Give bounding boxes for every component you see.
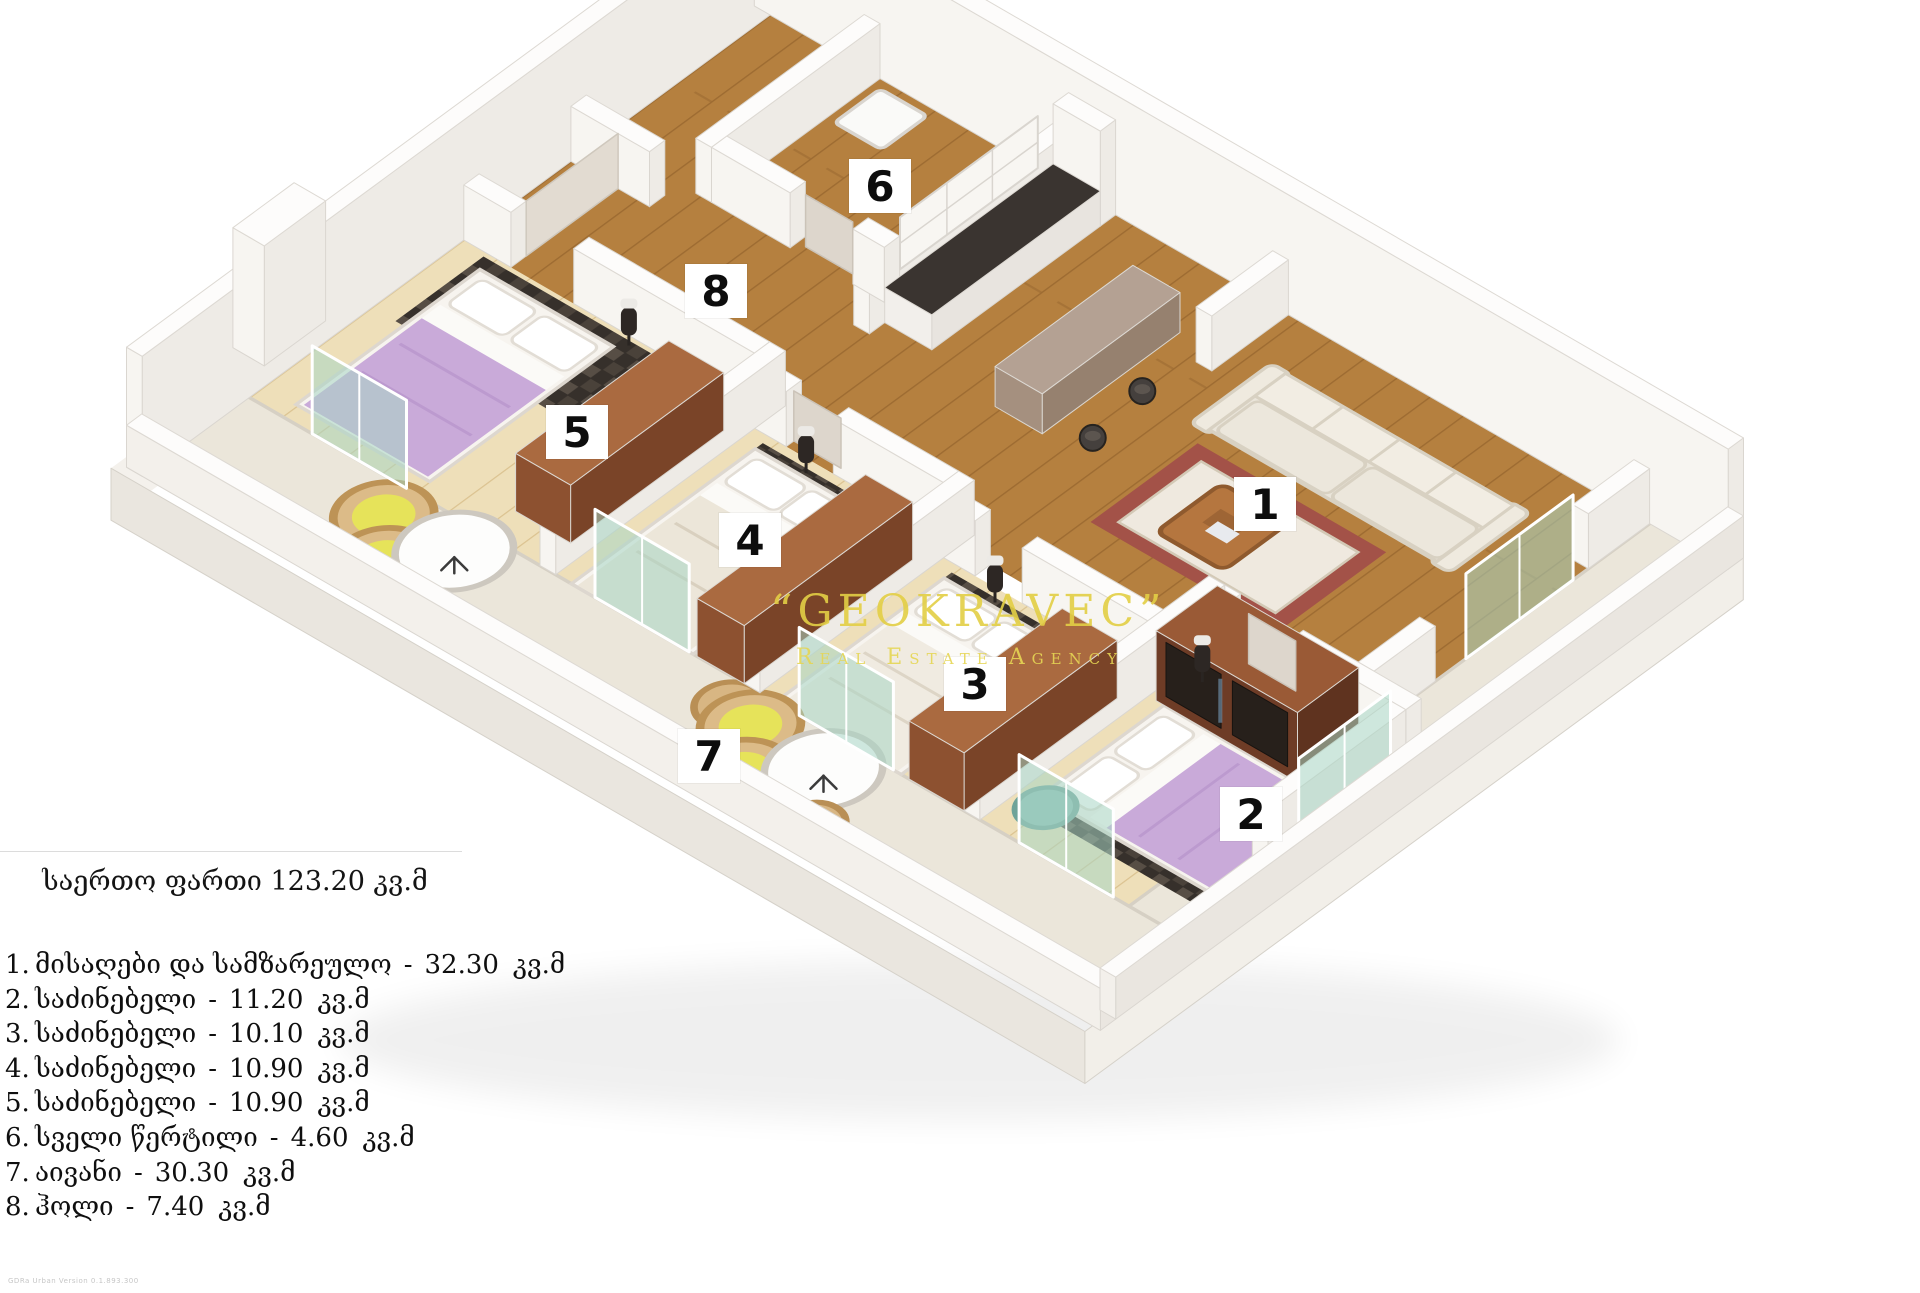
legend-item-number: 5.: [5, 1086, 35, 1121]
legend-item-unit: კვ.მ: [317, 1088, 369, 1118]
legend-item-name: აივანი: [35, 1158, 122, 1188]
legend-item-area: 10.10: [229, 1019, 303, 1049]
room-label-bedroom2: 2: [1220, 787, 1282, 841]
legend-item-area: 10.90: [229, 1054, 303, 1084]
legend-separator: -: [404, 950, 413, 980]
legend-separator: -: [208, 1088, 217, 1118]
legend-item: 5.საძინებელი-10.90კვ.მ: [5, 1086, 565, 1121]
room-label-hall: 8: [685, 264, 747, 318]
legend-item-name: საძინებელი: [35, 1054, 196, 1084]
legend-item: 3.საძინებელი-10.10კვ.მ: [5, 1017, 565, 1052]
legend-item-area: 4.60: [291, 1123, 349, 1153]
legend-item: 6.სველი წერტილი-4.60კვ.მ: [5, 1121, 565, 1156]
legend-item-name: საძინებელი: [35, 985, 196, 1015]
room-label-living: 1: [1234, 477, 1296, 531]
legend-item-number: 2.: [5, 983, 35, 1018]
legend-item-unit: კვ.მ: [317, 1019, 369, 1049]
room-label-bedroom3: 3: [944, 657, 1006, 711]
legend-separator: -: [126, 1192, 135, 1222]
real-estate-floor-plan-page: 1 2 3 4 5 6 7 8 “GEOKRAVEC” Real Estate …: [0, 0, 1920, 1293]
legend-item-area: 30.30: [155, 1158, 229, 1188]
legend-item: 4.საძინებელი-10.90კვ.მ: [5, 1052, 565, 1087]
legend-item: 8.ჰოლი-7.40კვ.მ: [5, 1190, 565, 1225]
legend-item: 2.საძინებელი-11.20კვ.მ: [5, 983, 565, 1018]
legend-separator: -: [134, 1158, 143, 1188]
legend-item-number: 8.: [5, 1190, 35, 1225]
legend-item-number: 1.: [5, 948, 35, 983]
legend-separator: -: [208, 985, 217, 1015]
legend-separator: -: [270, 1123, 279, 1153]
legend-item-area: 7.40: [146, 1192, 204, 1222]
room-label-balcony: 7: [678, 729, 740, 783]
legend-item-name: ჰოლი: [35, 1192, 114, 1222]
legend-divider: [0, 851, 462, 852]
legend-item-unit: კვ.მ: [513, 950, 565, 980]
legend-item: 7.აივანი-30.30კვ.მ: [5, 1156, 565, 1191]
total-area-title: საერთო ფართი 123.20 კვ.მ: [0, 866, 470, 897]
legend-item-unit: კვ.მ: [362, 1123, 414, 1153]
fine-print-watermark: GDRa Urban Version 0.1.893.300: [8, 1277, 139, 1285]
room-area-list: 1.მისაღები და სამზარეულო-32.30კვ.მ2.საძი…: [5, 948, 565, 1225]
legend-item-number: 6.: [5, 1121, 35, 1156]
room-label-bedroom5: 5: [546, 405, 608, 459]
legend-item-unit: კვ.მ: [218, 1192, 270, 1222]
legend-item-number: 3.: [5, 1017, 35, 1052]
legend-item-unit: კვ.მ: [317, 985, 369, 1015]
legend-item-number: 4.: [5, 1052, 35, 1087]
legend-item-area: 32.30: [424, 950, 498, 980]
legend-item-area: 11.20: [229, 985, 303, 1015]
legend-separator: -: [208, 1054, 217, 1084]
legend-item-number: 7.: [5, 1156, 35, 1191]
legend-item-name: მისაღები და სამზარეულო: [35, 950, 392, 980]
legend-item: 1.მისაღები და სამზარეულო-32.30კვ.მ: [5, 948, 565, 983]
legend-item-name: სველი წერტილი: [35, 1123, 258, 1153]
legend-item-area: 10.90: [229, 1088, 303, 1118]
room-label-bedroom4: 4: [719, 513, 781, 567]
legend-item-name: საძინებელი: [35, 1019, 196, 1049]
legend-item-unit: კვ.მ: [317, 1054, 369, 1084]
legend-separator: -: [208, 1019, 217, 1049]
legend-item-unit: კვ.მ: [243, 1158, 295, 1188]
room-label-wetpoint: 6: [849, 159, 911, 213]
legend-item-name: საძინებელი: [35, 1088, 196, 1118]
